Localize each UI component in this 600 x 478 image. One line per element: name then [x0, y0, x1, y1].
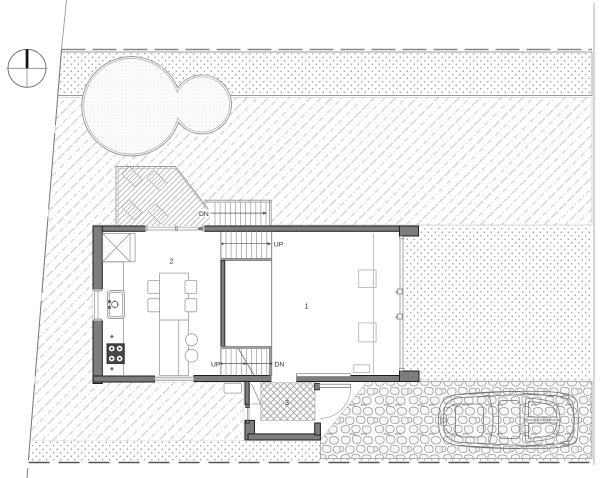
svg-text:DN: DN: [275, 361, 285, 368]
svg-text:UP: UP: [274, 242, 284, 249]
svg-text:UP: UP: [211, 361, 221, 368]
svg-text:2: 2: [170, 257, 174, 266]
svg-text:1: 1: [305, 302, 309, 311]
svg-text:DN: DN: [199, 211, 209, 218]
svg-text:3: 3: [285, 400, 289, 407]
